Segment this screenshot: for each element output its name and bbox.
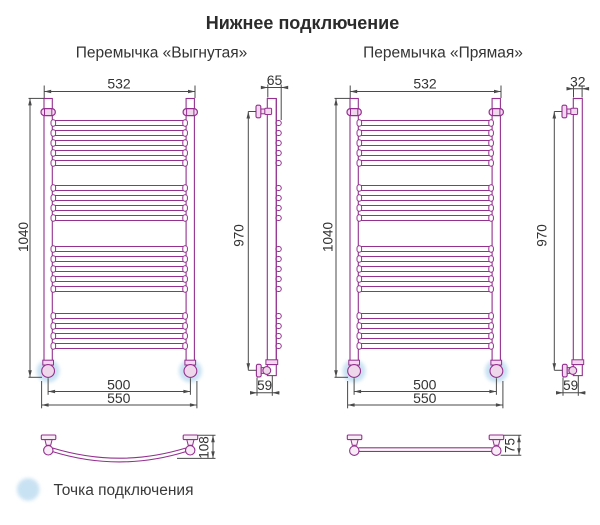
svg-text:550: 550 [107,390,131,406]
svg-text:Перемычка «Прямая»: Перемычка «Прямая» [363,45,523,62]
svg-text:532: 532 [107,76,131,92]
svg-text:75: 75 [503,438,518,453]
svg-text:Точка подключения: Точка подключения [54,482,194,499]
svg-text:108: 108 [197,436,212,459]
svg-text:1040: 1040 [321,222,336,252]
svg-text:1040: 1040 [16,222,31,252]
svg-text:Перемычка «Выгнутая»: Перемычка «Выгнутая» [76,45,248,62]
svg-text:59: 59 [563,378,578,393]
svg-text:Нижнее подключение: Нижнее подключение [206,13,400,33]
svg-text:970: 970 [535,224,550,247]
svg-text:970: 970 [232,224,247,247]
svg-text:32: 32 [570,73,586,89]
svg-text:59: 59 [257,378,272,393]
svg-text:532: 532 [413,76,437,92]
svg-text:65: 65 [267,72,283,88]
svg-text:550: 550 [413,390,437,406]
